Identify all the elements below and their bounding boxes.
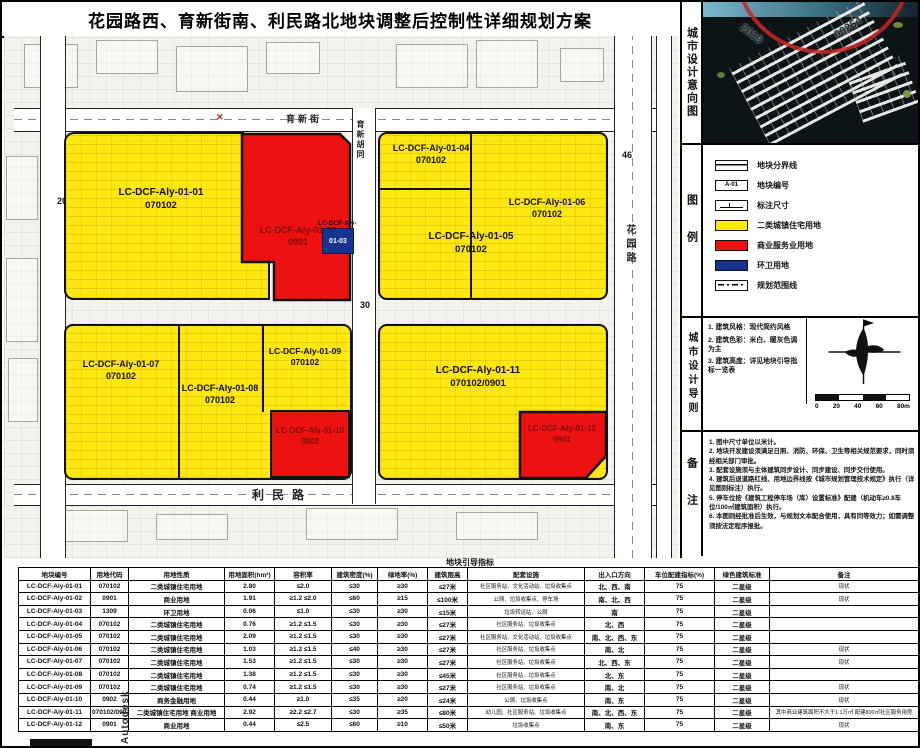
table-cell: LC-DCF-Aly-01-08 [19,668,91,681]
north-arrow [807,318,920,388]
table-cell: 75 [645,630,715,643]
parcel-01-09: LC-DCF-Aly-01-09 070102 [246,346,364,369]
remark-item: 5. 停车位按《建筑工程停车场（库）设置标准》配建（机动车≥0.8车位/100㎡… [709,494,915,513]
table-row: LC-DCF-Aly-01-11070102/0901二类城镇住宅用地 商业用地… [19,706,919,719]
table-cell: LC-DCF-Aly-01-12 [19,719,91,732]
scope-line-swatch [715,280,748,291]
table-cell: 南、北、西、东 [585,630,645,643]
table-cell: ≤27米 [428,580,468,593]
table-cell: ≤27米 [428,656,468,669]
aerial-photo-image: 2019 00254 [703,2,920,143]
parcel-id: LC-DCF-Aly-01-09 [246,346,364,357]
parcel-01-10: LC-DCF-Aly-01-10 0902 [270,410,350,478]
parcel-code: 070102 [158,394,282,406]
parcel-id: LC-DCF-Aly-01-04 [376,142,486,154]
table-cell: ≤2.5 [275,719,332,732]
table-cell: 75 [645,681,715,694]
parcel-id: LC-DCF-Aly-01-12 [518,424,606,435]
remark-item: 6. 本图则经批准后生效，与规划文本配合使用，具有同等效力；如需调整须按法定程序… [709,512,915,531]
table-cell: 二星级 [715,593,770,606]
guideline-item: 3. 建筑高度：详见地块引导指标一览表 [708,358,803,376]
table-cell: 75 [645,605,715,618]
table-cell: LC-DCF-Aly-01-03 [19,605,91,618]
table-cell: 2.80 [225,580,275,593]
road-west [40,36,66,558]
table-cell: 0.44 [225,719,275,732]
table-cell: ≥10 [378,719,428,732]
table-cell: 现状 [770,593,919,606]
table-cell: ≤27米 [428,618,468,631]
table-row: LC-DCF-Aly-01-120901商业用地0.44≤2.5≤60≥10≤5… [19,719,919,732]
table-cell: LC-DCF-Aly-01-07 [19,656,91,669]
table-row: LC-DCF-Aly-01-100902商务金融用地0.44≥1.0≤35≥20… [19,693,919,706]
context-building [266,42,320,74]
table-cell: LC-DCF-Aly-01-09 [19,681,91,694]
parcel-code: 0901 [518,435,606,446]
parcel-01-05: LC-DCF-Aly-01-05 070102 [396,230,546,256]
autodesk-watermark: Autodesk [120,690,131,744]
road-limin-road [14,484,672,506]
legend-label: 标注尺寸 [757,200,789,211]
parcel-01-06: LC-DCF-Aly-01-06 070102 [486,196,608,220]
table-cell: 现状 [770,656,919,669]
table-cell: ≥1.2 ≤1.5 [275,643,332,656]
table-cell: 社区服务站、文化活动站、垃圾收集点 [468,580,585,593]
legend-item-sanitation: 环卫用地 [715,255,916,275]
table-cell: 2.92 [225,706,275,719]
legend-label: 地块分界线 [757,160,797,171]
table-cell: 南、东 [585,719,645,732]
table-header-cell: 绿地率(%) [378,568,428,581]
table-cell: 社区服务站、垃圾收集点 [468,681,585,694]
guideline-item: 1. 建筑风格：现代简约风格 [708,324,803,333]
table-cell: ≤45米 [428,668,468,681]
table-cell: 社区服务站、垃圾收集点 [468,618,585,631]
table-cell: 二类城镇住宅用地 [129,656,225,669]
table-header-cell: 备注 [770,568,919,581]
table-cell: 0.74 [225,681,275,694]
plan-map: 育新街 利民路 花园路 育新胡同 20 30 46 ✕ LC-DCF-Aly-0… [4,36,678,558]
context-building [306,508,398,540]
parcel-code: 070102 [376,154,486,166]
context-building [476,40,538,88]
scale-tick-label: 20 [833,403,840,410]
table-cell: 二星级 [715,719,770,732]
table-cell: ≤60 [332,719,378,732]
table-cell: ≤30 [332,668,378,681]
table-cell: ≥30 [378,656,428,669]
parcel-index-table: 地块编号用地代码用地性质用地面积(hm²)容积率建筑密度(%)绿地率(%)建筑限… [18,567,919,732]
table-cell: LC-DCF-Aly-01-02 [19,593,91,606]
road-label-alley: 育新胡同 [355,120,366,160]
table-cell: ≥1.2 ≤1.5 [275,618,332,631]
table-cell [770,668,919,681]
parcel-code: 01-03 [329,238,347,245]
parcel-id: LC-DCF-Aly-01-01 [86,186,236,200]
table-body: LC-DCF-Aly-01-01070102二类城镇住宅用地2.80≤2.0≤3… [19,580,919,731]
remark-item: 1. 图中尺寸单位以米计。 [709,438,915,447]
table-cell: ≤1.0 [275,605,332,618]
table-cell: ≥30 [378,630,428,643]
road-centerline [14,494,672,495]
table-cell: 二星级 [715,630,770,643]
table-cell: 070102 [91,668,129,681]
table-cell: 1309 [91,605,129,618]
remark-item: 4. 建筑后退道路红线、用地边界线按《城市规划管理技术规定》执行（详见图则标注）… [709,475,915,494]
table-cell: ≥30 [378,580,428,593]
table-cell: ≥30 [378,618,428,631]
section-label: 备注 [682,432,703,556]
table-header-cell: 用地代码 [91,568,129,581]
table-cell: 二类城镇住宅用地 [129,643,225,656]
context-building [6,258,38,342]
table-cell: ≤27米 [428,681,468,694]
table-header-cell: 绿色建筑标准 [715,568,770,581]
parcel-divider [380,188,470,190]
section-design-guidelines: 城市设计导则 1. 建筑风格：现代简约风格2. 建筑色彩：米白、暖灰色调为主3.… [682,318,920,432]
road-width-dim-middle: 30 [360,300,370,310]
parcel-id: LC-DCF-Aly-01-08 [158,382,282,394]
table-row: LC-DCF-Aly-01-07070102二类城镇住宅用地1.53≥1.2 ≤… [19,656,919,669]
table-cell: 二星级 [715,656,770,669]
table-cell: 北、东 [585,668,645,681]
context-building [8,358,38,422]
table-cell: 2.09 [225,630,275,643]
table-cell: 北、西 [585,618,645,631]
table-cell: ≤24米 [428,693,468,706]
table-cell: ≥30 [378,668,428,681]
table-cell: LC-DCF-Aly-01-05 [19,630,91,643]
table-cell: ≥1.0 [275,693,332,706]
photo-vegetation [893,22,903,28]
table-header-cell: 建筑限高 [428,568,468,581]
table-cell: ≥1.2 ≤1.5 [275,668,332,681]
legend-item-scope-line: 规划范围线 [715,275,916,295]
scale-bar-segments [815,394,910,401]
table-row: LC-DCF-Aly-01-020901商业用地1.91≥1.2 ≤2.0≤60… [19,593,919,606]
table-header-cell: 建筑密度(%) [332,568,378,581]
parcel-code: 070102 [246,357,364,368]
road-label-limin: 利民路 [252,486,312,503]
table-cell: 070102 [91,580,129,593]
table-cell [770,630,919,643]
context-building [560,48,604,82]
table-cell: ≤27米 [428,630,468,643]
legend-label: 二类城镇住宅用地 [757,220,821,231]
guideline-item: 2. 建筑色彩：米白、暖灰色调为主 [708,337,803,355]
section-legend: 图例 地块分界线 A-01 地块编号 标注尺寸 [682,145,920,318]
table-cell: 南、北、西、东 [585,706,645,719]
road-label-yuxin: 育新街 [286,112,322,125]
table-cell: 环卫用地 [129,605,225,618]
table-cell: 现状 [770,643,919,656]
context-building [156,514,228,540]
table-cell: 1.91 [225,593,275,606]
table-cell: 二星级 [715,580,770,593]
table-header-cell: 地块编号 [19,568,91,581]
table-cell: ≥2.2 ≤2.7 [275,706,332,719]
table-cell: 75 [645,593,715,606]
table-cell: 现状 [770,693,919,706]
table-cell: 公厕、垃圾收集点、停车场 [468,593,585,606]
table-cell: ≥1.2 ≤2.0 [275,593,332,606]
table-cell: ≤30 [332,580,378,593]
guidelines-list: 1. 建筑风格：现代简约风格2. 建筑色彩：米白、暖灰色调为主3. 建筑高度：详… [703,318,807,404]
table-cell: 75 [645,693,715,706]
table-cell: 0.44 [225,693,275,706]
parcel-01-11: LC-DCF-Aly-01-11 070102/0901 [398,364,558,390]
table-cell: ≤60 [332,593,378,606]
road-yuxin-street [14,108,672,132]
table-cell: 现状 [770,681,919,694]
table-cell: ≤30 [332,656,378,669]
context-building [176,46,248,92]
remark-item: 3. 配套设施须与主体建筑同步设计、同步建设、同步交付使用。 [709,466,915,475]
table-cell: ≥30 [378,643,428,656]
residential-swatch [715,220,748,231]
table-cell: 二星级 [715,618,770,631]
scan-artifact-bar [30,739,92,748]
table-cell: ≤30 [332,681,378,694]
table-cell: 二星级 [715,605,770,618]
table-cell: LC-DCF-Aly-01-10 [19,693,91,706]
table-cell: 南、北 [585,681,645,694]
table-cell: 商业用地 [129,719,225,732]
table-cell: 75 [645,719,715,732]
table-cell: 二类城镇住宅用地 [129,580,225,593]
table-cell: ≥20 [378,693,428,706]
context-building [6,156,38,220]
table-header-cell: 容积率 [275,568,332,581]
parcel-code: 070102 [86,200,236,213]
scale-tick-label: 60 [876,403,883,410]
table-cell: 二星级 [715,668,770,681]
table-cell: ≤35 [332,693,378,706]
table-cell: ≤30 [332,618,378,631]
parcel-01-07: LC-DCF-Aly-01-07 070102 [58,358,184,382]
block-southeast: LC-DCF-Aly-01-11 070102/0901 LC-DCF-Aly-… [378,324,608,480]
table-cell: ≤30 [332,630,378,643]
boundary-line-swatch [715,160,748,171]
parcel-01-08: LC-DCF-Aly-01-08 070102 [158,382,282,406]
legend-list: 地块分界线 A-01 地块编号 标注尺寸 二类城镇住宅用地 [715,155,916,295]
table-cell: 商业用地 [129,593,225,606]
table-cell: 75 [645,668,715,681]
table-cell: ≥35 [378,706,428,719]
table-cell: 其中商业建筑面积不大于1.1万㎡ 配建800㎡社区服务用房 [770,706,919,719]
legend-label: 规划范围线 [757,280,797,291]
table-cell: 北、西、南 [585,580,645,593]
table-cell: ≥30 [378,605,428,618]
sidebar: 城市设计意向图 2019 00254 图例 [680,2,920,558]
parcel-id: LC-DCF-Aly-01-05 [396,230,546,244]
legend-label: 环卫用地 [757,260,789,271]
table-cell: 75 [645,643,715,656]
table-header-row: 地块编号用地代码用地性质用地面积(hm²)容积率建筑密度(%)绿地率(%)建筑限… [19,568,919,581]
scale-tick-label: 0 [815,403,819,410]
table-cell: 现状 [770,719,919,732]
table-cell: 75 [645,580,715,593]
table-cell: 商务金融用地 [129,693,225,706]
parcel-id: LC-DCF-Aly-01-11 [398,364,558,378]
table-cell: 社区服务站、垃圾收集点 [468,656,585,669]
legend-label: 商业服务业用地 [757,240,813,251]
table-row: LC-DCF-Aly-01-09070102二类城镇住宅用地0.74≥1.2 ≤… [19,681,919,694]
table-row: LC-DCF-Aly-01-04070102二类城镇住宅用地0.76≥1.2 ≤… [19,618,919,631]
table-cell: 二星级 [715,706,770,719]
legend-item-boundary: 地块分界线 [715,155,916,175]
table-header-cell: 用地性质 [129,568,225,581]
table-cell: 070102 [91,643,129,656]
scale-tick-label: 40 [854,403,861,410]
aerial-photo: 2019 00254 [703,2,920,143]
table-cell: 垃圾转运站、公厕 [468,605,585,618]
table-cell: ≤27米 [428,643,468,656]
table-cell: 二类城镇住宅用地 [129,681,225,694]
road-width-dim-right: 46 [622,150,632,160]
parcel-01-02 [240,132,352,302]
table-row: LC-DCF-Aly-01-031309环卫用地0.06≤1.0≤30≥30≤1… [19,605,919,618]
table-row: LC-DCF-Aly-01-01070102二类城镇住宅用地2.80≤2.0≤3… [19,580,919,593]
table-cell: 二星级 [715,693,770,706]
table-cell: 二类城镇住宅用地 [129,618,225,631]
road-label-huayuan: 花园路 [622,224,637,266]
table-cell: 75 [645,656,715,669]
table-row: LC-DCF-Aly-01-06070102二类城镇住宅用地1.03≥1.2 ≤… [19,643,919,656]
road-huayuan-road [614,36,652,558]
table-cell: 二类城镇住宅用地 [129,668,225,681]
section-label: 城市设计意向图 [682,2,703,143]
table-cell: LC-DCF-Aly-01-04 [19,618,91,631]
table-cell: 75 [645,618,715,631]
table-cell: ≥1.2 ≤1.5 [275,630,332,643]
table-cell: 南、北 [585,643,645,656]
table-cell: 南、东 [585,693,645,706]
table-cell: 公厕、垃圾收集点 [468,693,585,706]
table-header-cell: 配套设施 [468,568,585,581]
table-cell [770,605,919,618]
table-cell: 0.76 [225,618,275,631]
legend-item-commercial: 商业服务业用地 [715,235,916,255]
page-title: 花园路西、育新街南、利民路北地块调整后控制性详细规划方案 [2,2,678,38]
table-cell: 070102 [91,618,129,631]
table-header-cell: 出入口方向 [585,568,645,581]
table-cell: 1.38 [225,668,275,681]
table-cell: 北、西、东 [585,656,645,669]
table-cell: ≤15米 [428,605,468,618]
table-cell: 二类城镇住宅用地 [129,630,225,643]
scale-tick-label: 80m [897,403,910,410]
table-cell: ≤30 [332,605,378,618]
scale-bar: 020406080m [815,394,910,416]
parcel-01-03: 01-03 [322,228,354,254]
table-cell: 社区服务站、垃圾收集点 [468,668,585,681]
table-cell: ≤30 [332,706,378,719]
context-building [396,44,468,88]
table-row: LC-DCF-Aly-01-08070102二类城镇住宅用地1.38≥1.2 ≤… [19,668,919,681]
table-cell: ≥30 [378,681,428,694]
table-cell: 1.03 [225,643,275,656]
block-southwest: LC-DCF-Aly-01-07 070102 LC-DCF-Aly-01-08… [64,324,352,480]
table-cell: 75 [645,706,715,719]
intersection-mark: ✕ [216,112,224,123]
context-building [456,512,538,540]
table-cell: 南 [585,605,645,618]
table-cell: 二星级 [715,681,770,694]
road-centerline [14,119,672,120]
table-cell: LC-DCF-Aly-01-01 [19,580,91,593]
context-building [96,40,158,74]
road-centerline [632,36,633,558]
table-cell: ≤40 [332,643,378,656]
table-cell: ≤80米 [428,706,468,719]
parcel-01-04: LC-DCF-Aly-01-04 070102 [376,142,486,166]
parcel-id: LC-DCF-Aly-01-06 [486,196,608,208]
parcel-number-swatch: A-01 [715,180,748,191]
parcel-code: 0902 [266,437,354,448]
table-cell: 社区服务站、文化活动站、垃圾收集点 [468,630,585,643]
block-northeast: LC-DCF-Aly-01-04 070102 LC-DCF-Aly-01-05… [378,132,608,300]
remark-item: 2. 地块开发建设须满足日照、消防、环保、卫生等相关规范要求，同时须经相关部门审… [709,447,915,466]
table-cell: ≥1.2 ≤1.5 [275,656,332,669]
section-design-intention: 城市设计意向图 2019 00254 [682,2,920,145]
section-label: 图例 [682,145,703,316]
parcel-id: LC-DCF-Aly-01-07 [58,358,184,370]
sanitation-swatch [715,260,748,271]
legend-item-dimension: 标注尺寸 [715,195,916,215]
table-cell: 垃圾收集点 [468,719,585,732]
table-cell: LC-DCF-Aly-01-06 [19,643,91,656]
table-cell: 南、北、西 [585,593,645,606]
table-cell: 070102 [91,630,129,643]
table-cell: 社区服务站、垃圾收集点 [468,643,585,656]
legend-label: 地块编号 [757,180,789,191]
plan-sheet: 花园路西、育新街南、利民路北地块调整后控制性详细规划方案 育新街 [0,0,920,748]
table-cell [770,618,919,631]
table-cell: ≤100米 [428,593,468,606]
table-cell: ≥1.2 ≤1.5 [275,681,332,694]
dimension-swatch [715,200,748,211]
commercial-swatch [715,240,748,251]
table-cell: 070102 [91,656,129,669]
legend-item-residential: 二类城镇住宅用地 [715,215,916,235]
table-cell: ≤50米 [428,719,468,732]
table-cell: 幼儿园、社区服务站、垃圾收集点 [468,706,585,719]
table-row: LC-DCF-Aly-01-05070102二类城镇住宅用地2.09≥1.2 ≤… [19,630,919,643]
table-cell: 现状 [770,580,919,593]
section-remarks: 备注 1. 图中尺寸单位以米计。2. 地块开发建设须满足日照、消防、环保、卫生等… [682,432,920,556]
table-cell: 0901 [91,593,129,606]
parcel-code: 070102 [486,208,608,220]
remarks-list: 1. 图中尺寸单位以米计。2. 地块开发建设须满足日照、消防、环保、卫生等相关规… [709,438,915,531]
table-header-cell: 用地面积(hm²) [225,568,275,581]
section-label: 城市设计导则 [682,318,703,430]
table-cell: 二类城镇住宅用地 商业用地 [129,706,225,719]
parcel-code: 070102 [58,370,184,382]
table-cell: 0.06 [225,605,275,618]
parcel-id: LC-DCF-Aly- [318,220,357,227]
legend-item-parcel-number: A-01 地块编号 [715,175,916,195]
parcel-code: 070102/0901 [398,378,558,391]
photo-vegetation [717,72,725,78]
table-header-cell: 车位配建指标(%) [645,568,715,581]
table-cell: ≥15 [378,593,428,606]
photo-vegetation [903,90,911,98]
parcel-code: 070102 [396,244,546,257]
table-cell: 二星级 [715,643,770,656]
table-cell: 1.53 [225,656,275,669]
table-cell: LC-DCF-Aly-01-11 [19,706,91,719]
